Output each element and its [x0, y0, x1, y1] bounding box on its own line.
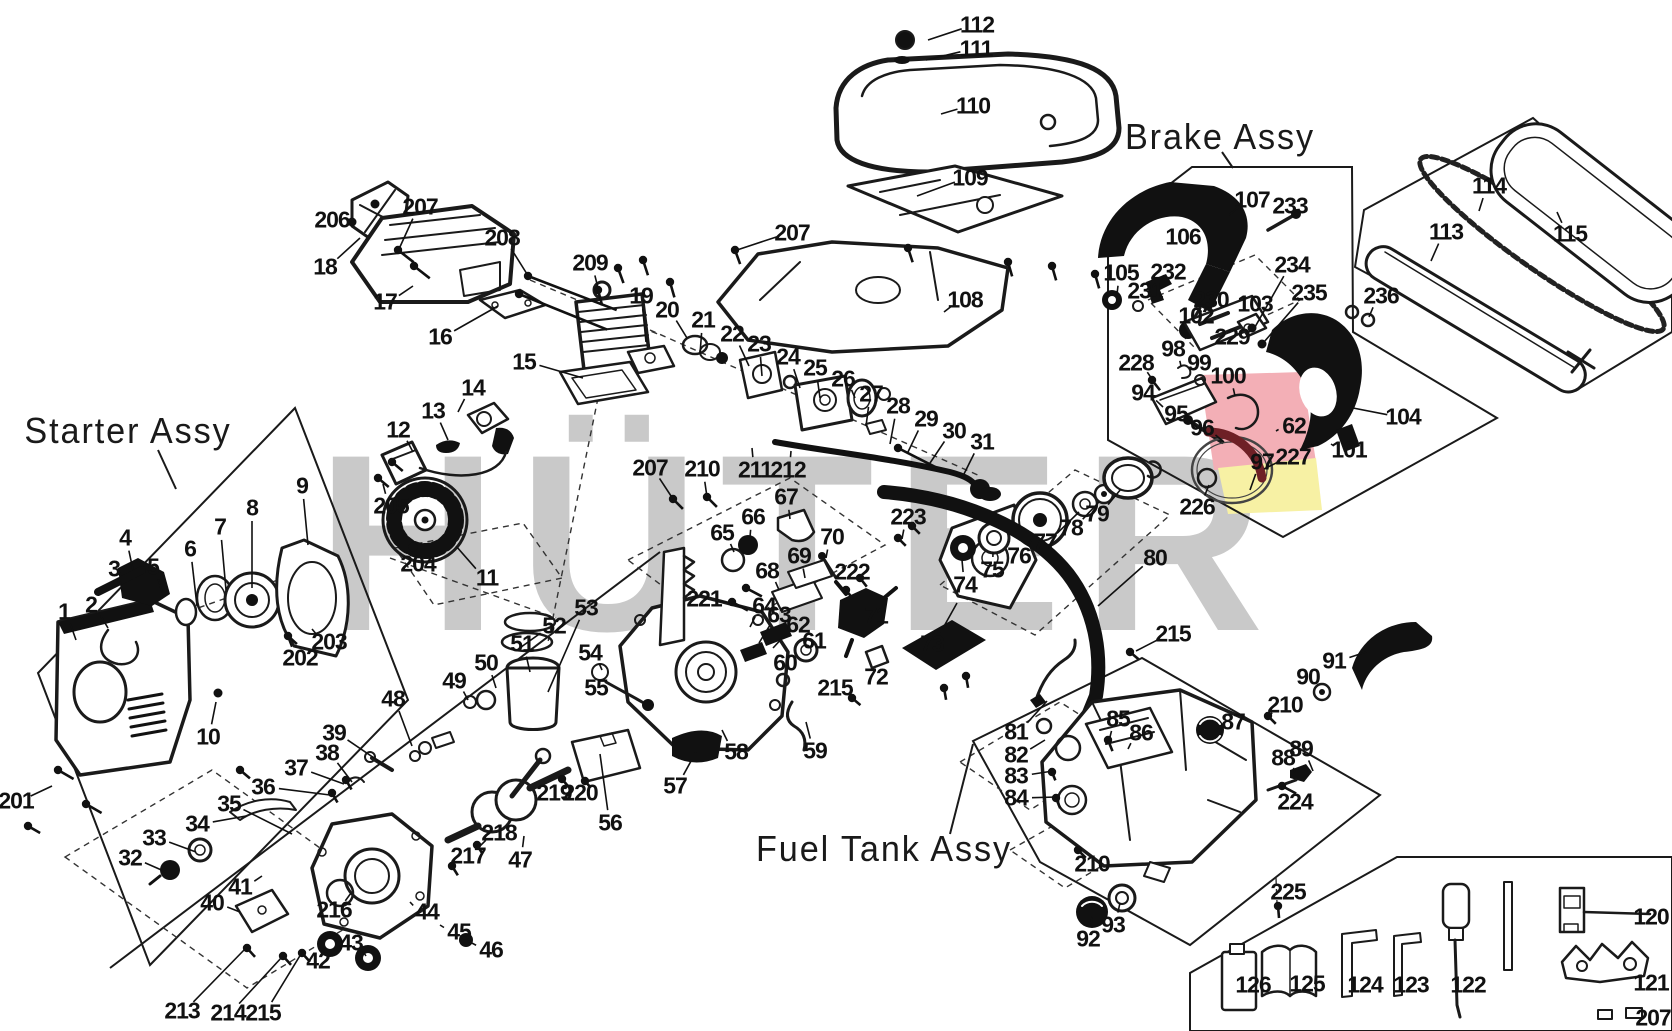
part-callout-104: 104	[1385, 404, 1420, 431]
part-callout-75: 75	[980, 557, 1004, 584]
part-callout-114: 114	[1472, 173, 1506, 200]
assembly-label-fuel: Fuel Tank Assy	[756, 828, 1012, 870]
ignition-lead	[420, 452, 506, 475]
part-callout-86: 86	[1129, 720, 1153, 747]
part-callout-226: 226	[1179, 494, 1214, 521]
part-callout-214: 214	[210, 1000, 245, 1027]
part-callout-5: 5	[147, 554, 159, 581]
cover-knob	[896, 31, 914, 49]
part-callout-100: 100	[1210, 363, 1245, 390]
part-callout-16: 16	[428, 324, 452, 351]
assembly-label-starter: Starter Assy	[24, 410, 231, 452]
part-callout-213: 213	[164, 998, 199, 1025]
part-callout-60: 60	[773, 650, 797, 677]
part-callout-92: 92	[1076, 926, 1100, 953]
part-callout-58: 58	[724, 739, 748, 766]
part-callout-34: 34	[185, 811, 209, 838]
part-callout-10: 10	[196, 724, 220, 751]
piston	[507, 668, 559, 730]
part-callout-11: 11	[476, 565, 498, 592]
part-callout-225: 225	[1270, 879, 1305, 906]
part-callout-207: 207	[1635, 1005, 1670, 1031]
part-callout-94: 94	[1131, 380, 1155, 407]
chainsaw-parts-diagram: HÜTER	[0, 0, 1672, 1031]
part-callout-207: 207	[402, 194, 437, 221]
cap-gasket	[1109, 885, 1135, 911]
part-callout-2: 2	[85, 592, 97, 619]
part-callout-87: 87	[1221, 709, 1245, 736]
part-callout-12: 12	[386, 417, 410, 444]
part-callout-35: 35	[217, 791, 241, 818]
part-callout-235: 235	[1291, 280, 1326, 307]
part-callout-15: 15	[512, 349, 536, 376]
part-callout-19: 19	[629, 283, 653, 310]
part-callout-218: 218	[481, 820, 516, 847]
part-callout-36: 36	[251, 774, 275, 801]
part-callout-111: 111	[960, 36, 993, 63]
part-callout-59: 59	[803, 738, 827, 765]
part-callout-79: 79	[1085, 501, 1109, 528]
part-callout-215: 215	[245, 1000, 280, 1027]
part-callout-8: 8	[246, 495, 258, 522]
part-callout-46: 46	[479, 937, 503, 964]
part-callout-49: 49	[442, 668, 466, 695]
part-callout-30: 30	[942, 418, 966, 445]
part-callout-232: 232	[1150, 259, 1185, 286]
screw-pack	[1598, 1010, 1612, 1019]
rear-handle-grip	[1352, 622, 1432, 690]
part-callout-66: 66	[741, 504, 765, 531]
part-callout-227: 227	[1275, 444, 1310, 471]
part-callout-223: 223	[890, 504, 925, 531]
part-callout-95: 95	[1164, 401, 1188, 428]
part-callout-48: 48	[381, 686, 405, 713]
part-callout-50: 50	[474, 650, 498, 677]
part-callout-125: 125	[1289, 971, 1324, 998]
part-callout-13: 13	[421, 398, 445, 425]
part-callout-205: 205	[373, 493, 408, 520]
part-callout-53: 53	[574, 595, 598, 622]
part-callout-23: 23	[747, 331, 771, 358]
part-callout-67: 67	[774, 484, 798, 511]
part-callout-39: 39	[322, 720, 346, 747]
part-callout-64: 64	[752, 593, 776, 620]
part-callout-211: 211	[738, 457, 772, 484]
part-callout-210: 210	[1074, 851, 1109, 878]
part-callout-215: 215	[1155, 621, 1190, 648]
inner-plate	[572, 730, 640, 782]
part-callout-27: 27	[859, 381, 883, 408]
part-callout-76: 76	[1007, 543, 1031, 570]
part-callout-21: 21	[691, 307, 715, 334]
part-callout-207: 207	[774, 220, 809, 247]
spark-plug-cap	[492, 428, 514, 455]
part-callout-37: 37	[284, 755, 308, 782]
part-callout-98: 98	[1161, 336, 1185, 363]
part-callout-74: 74	[953, 572, 977, 599]
part-callout-112: 112	[960, 12, 994, 39]
part-callout-122: 122	[1450, 972, 1485, 999]
part-callout-41: 41	[228, 874, 252, 901]
part-callout-101: 101	[1331, 437, 1366, 464]
part-callout-217: 217	[450, 843, 485, 870]
part-callout-9: 9	[296, 473, 308, 500]
part-callout-85: 85	[1106, 706, 1130, 733]
part-callout-52: 52	[542, 613, 566, 640]
part-callout-42: 42	[306, 948, 330, 975]
spike-strip	[660, 548, 684, 645]
part-callout-220: 220	[562, 780, 597, 807]
part-callout-228: 228	[1118, 350, 1153, 377]
part-callout-108: 108	[947, 287, 982, 314]
part-callout-78: 78	[1059, 515, 1083, 542]
part-callout-77: 77	[1033, 529, 1057, 556]
part-callout-90: 90	[1296, 664, 1320, 691]
part-callout-20: 20	[655, 297, 679, 324]
part-callout-97: 97	[1250, 449, 1274, 476]
part-callout-89: 89	[1289, 736, 1313, 763]
part-callout-47: 47	[508, 847, 532, 874]
part-callout-203: 203	[311, 629, 346, 656]
part-callout-212: 212	[770, 457, 805, 484]
part-callout-68: 68	[755, 558, 779, 585]
part-callout-31: 31	[970, 429, 994, 456]
part-callout-99: 99	[1187, 350, 1211, 377]
hand-guard-grip	[672, 730, 722, 762]
part-drawings	[56, 31, 1672, 1019]
part-callout-51: 51	[510, 631, 534, 658]
tool-kit-boundary	[1190, 857, 1672, 1031]
part-callout-201: 201	[0, 788, 34, 815]
grommet	[436, 440, 460, 453]
part-callout-17: 17	[373, 289, 397, 316]
part-callout-22: 22	[720, 321, 744, 348]
part-callout-206: 206	[314, 207, 349, 234]
part-callout-43: 43	[339, 930, 363, 957]
part-callout-26: 26	[831, 366, 855, 393]
part-callout-33: 33	[142, 825, 166, 852]
part-callout-80: 80	[1143, 545, 1167, 572]
part-callout-209: 209	[572, 250, 607, 277]
part-callout-69: 69	[787, 543, 811, 570]
part-callout-120: 120	[1633, 904, 1668, 931]
part-callout-7: 7	[214, 514, 226, 541]
part-callout-107: 107	[1234, 187, 1269, 214]
part-callout-55: 55	[584, 675, 608, 702]
part-callout-6: 6	[184, 536, 196, 563]
part-callout-230: 230	[1193, 287, 1228, 314]
part-callout-208: 208	[484, 225, 519, 252]
part-callout-44: 44	[415, 899, 439, 926]
part-callout-210: 210	[1267, 692, 1302, 719]
part-callout-62: 62	[1282, 413, 1306, 440]
part-callout-96: 96	[1190, 415, 1214, 442]
part-callout-14: 14	[461, 375, 485, 402]
part-callout-236: 236	[1363, 283, 1398, 310]
part-callout-93: 93	[1101, 912, 1125, 939]
part-callout-24: 24	[776, 344, 800, 371]
file-rod	[1504, 882, 1512, 970]
part-callout-71: 71	[864, 603, 888, 630]
part-callout-124: 124	[1347, 972, 1382, 999]
part-callout-224: 224	[1277, 789, 1312, 816]
part-callout-18: 18	[313, 254, 337, 281]
part-callout-84: 84	[1004, 785, 1028, 812]
guide-bar	[1360, 240, 1592, 398]
part-callout-204: 204	[400, 551, 435, 578]
part-callout-113: 113	[1429, 219, 1463, 246]
assembly-label-brake: Brake Assy	[1125, 116, 1315, 158]
part-callout-3: 3	[108, 556, 120, 583]
piston-pin	[477, 691, 495, 709]
part-callout-29: 29	[914, 406, 938, 433]
part-callout-207: 207	[632, 455, 667, 482]
part-callout-221: 221	[686, 586, 721, 613]
part-callout-72: 72	[864, 664, 888, 691]
rocker-bracket	[778, 510, 814, 541]
part-callout-121: 121	[1633, 970, 1668, 997]
part-callout-222: 222	[834, 559, 869, 586]
part-callout-56: 56	[598, 810, 622, 837]
part-callout-234: 234	[1274, 252, 1309, 279]
part-callout-115: 115	[1553, 221, 1587, 248]
screwdriver	[1443, 884, 1469, 928]
part-callout-45: 45	[447, 919, 471, 946]
part-callout-106: 106	[1165, 224, 1200, 251]
part-callout-32: 32	[118, 845, 142, 872]
part-callout-103: 103	[1237, 291, 1272, 318]
part-callout-233: 233	[1272, 193, 1307, 220]
part-callout-210: 210	[684, 456, 719, 483]
part-callout-25: 25	[803, 355, 827, 382]
part-callout-1: 1	[58, 599, 70, 626]
part-callout-216: 216	[316, 897, 351, 924]
part-callout-4: 4	[119, 525, 131, 552]
part-callout-54: 54	[578, 640, 602, 667]
part-callout-91: 91	[1322, 648, 1346, 675]
part-callout-123: 123	[1393, 972, 1428, 999]
part-callout-109: 109	[952, 165, 987, 192]
part-callout-110: 110	[956, 93, 990, 120]
av-buffer	[1196, 716, 1224, 744]
part-callout-215: 215	[817, 675, 852, 702]
part-callout-126: 126	[1235, 972, 1270, 999]
part-callout-229: 229	[1214, 324, 1249, 351]
part-callout-28: 28	[886, 393, 910, 420]
part-callout-40: 40	[200, 890, 224, 917]
part-callout-65: 65	[710, 520, 734, 547]
part-callout-70: 70	[820, 524, 844, 551]
part-callout-73: 73	[920, 631, 944, 658]
part-callout-57: 57	[663, 773, 687, 800]
